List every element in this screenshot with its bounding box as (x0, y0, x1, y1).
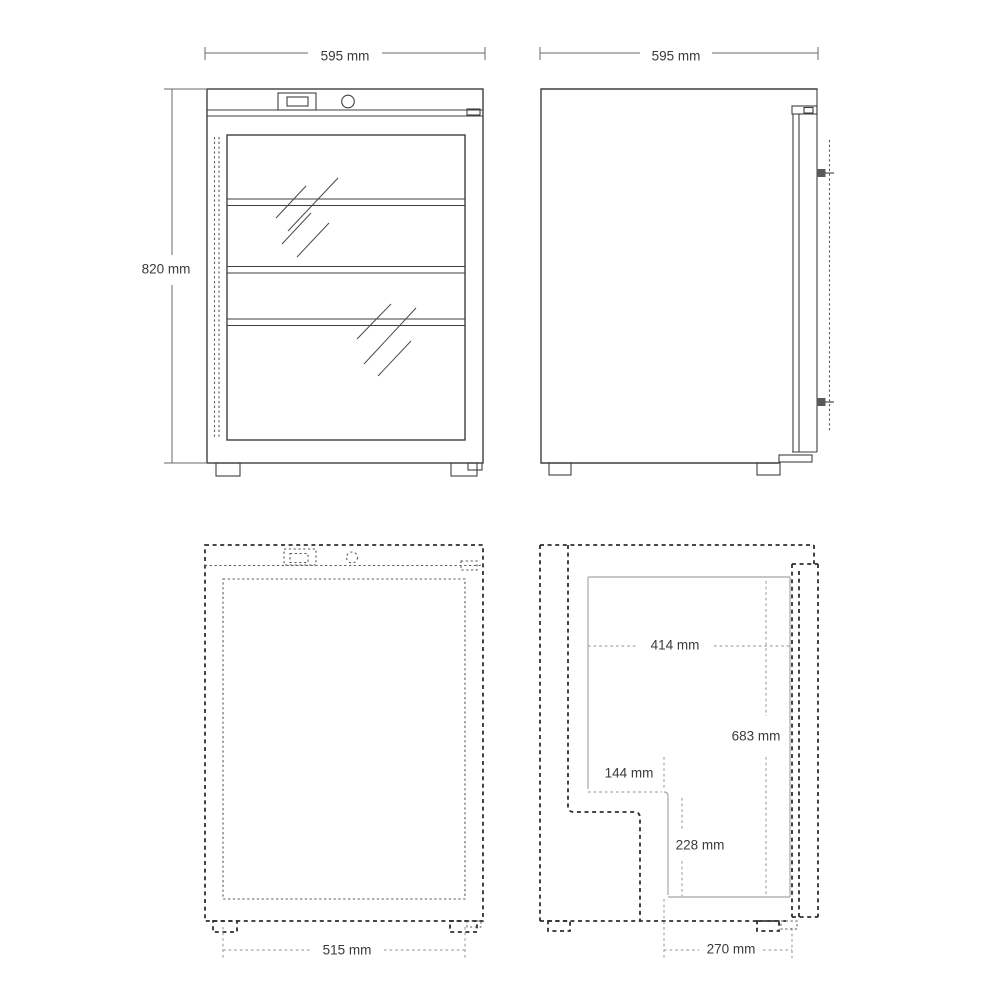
door-kick-plate (779, 455, 812, 462)
shelves (227, 199, 465, 326)
interior-depth-dimension: 414 mm (588, 638, 790, 653)
front-view: 595 mm 820 mm (142, 47, 485, 476)
foot-step (468, 463, 482, 470)
liner-ghost (568, 545, 640, 921)
display-screen-ghost (290, 554, 308, 563)
display-screen (287, 97, 308, 106)
foot (549, 463, 571, 475)
foot (216, 463, 240, 476)
foot-ghost (757, 921, 779, 931)
cabinet-side-outline (541, 89, 817, 463)
interior-depth-label: 414 mm (651, 638, 700, 653)
front-width-label: 595 mm (321, 49, 370, 64)
front-height-dimension: 820 mm (142, 89, 206, 463)
hinge-pin (817, 398, 826, 406)
door-top-notch (804, 108, 813, 114)
glass-door-ghost (223, 579, 465, 899)
control-panel (278, 93, 354, 110)
interior-height-label: 683 mm (732, 729, 781, 744)
plan-front-feet (213, 921, 481, 932)
front-depth-label: 270 mm (707, 942, 756, 957)
hinge-pin (817, 169, 826, 177)
foot (757, 463, 780, 475)
foot-ghost (548, 921, 570, 931)
foot-ghost (450, 921, 477, 932)
shelf (227, 319, 465, 326)
foot-ghost (213, 921, 237, 932)
power-button-ghost (347, 552, 358, 563)
control-panel-ghost (284, 549, 477, 570)
appliance-dimension-drawing: 595 mm 820 mm (0, 0, 1000, 1000)
door-hinge-strip (215, 137, 220, 438)
front-feet (216, 463, 482, 476)
side-view: 595 mm (540, 47, 834, 475)
recess-height-dimension: 228 mm (676, 798, 725, 896)
glass-door (227, 135, 465, 440)
cabinet-ghost-outline (205, 545, 483, 921)
recess-depth-dimension: 144 mm (605, 757, 664, 790)
front-width-dimension: 595 mm (205, 47, 485, 64)
power-button (342, 95, 355, 108)
side-depth-dimension: 595 mm (540, 47, 818, 64)
technical-drawing-page: 595 mm 820 mm (0, 0, 1000, 1000)
door-bottom-ghost (781, 921, 797, 929)
inner-width-dimension: 515 mm (223, 927, 465, 958)
side-depth-label: 595 mm (652, 49, 701, 64)
shelf (227, 267, 465, 274)
plan-front-view: 515 mm (205, 545, 483, 958)
hinge-pins (817, 169, 835, 406)
display-bezel (278, 93, 316, 110)
inner-width-label: 515 mm (323, 943, 372, 958)
side-feet (549, 463, 780, 475)
recess-depth-label: 144 mm (605, 766, 654, 781)
interior-height-dimension: 683 mm (732, 581, 781, 896)
front-depth-dimension: 270 mm (664, 899, 792, 958)
cabinet-front-outline (207, 89, 483, 463)
door-profile (779, 89, 817, 462)
plan-side-feet (548, 921, 797, 931)
glass-reflections (276, 178, 416, 376)
shelf (227, 199, 465, 206)
plan-side-view: 414 mm 683 mm 144 mm 228 mm 270 mm (540, 545, 818, 958)
recess-height-label: 228 mm (676, 838, 725, 853)
front-height-label: 820 mm (142, 262, 191, 277)
